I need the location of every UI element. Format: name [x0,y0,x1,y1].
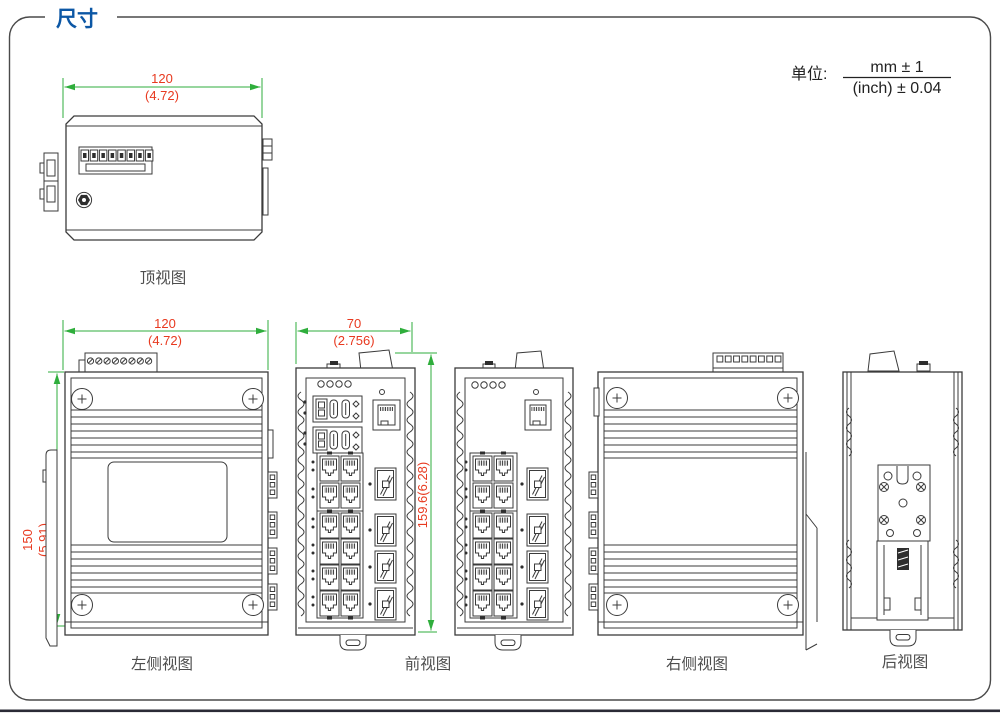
front-width-dimension: 70 (2.756) [296,316,412,364]
din-mount-plate [878,465,930,541]
rear-view: 后视图 [843,351,962,671]
left-side-view-label: 左侧视图 [131,655,193,673]
din-latch [877,541,928,620]
dimension-drawing: 尺寸 单位: mm ± 1 (inch) ± 0.04 120 (4.72) 顶… [0,0,1000,717]
front-height: 159.6(6.28) [415,462,430,529]
top-view-body [66,116,262,240]
ground-screw-icon [76,192,91,207]
top-width-mm: 120 [151,71,173,86]
right-side-view-label: 右侧视图 [666,655,728,673]
front-view-alt [455,351,573,650]
rear-view-label: 后视图 [882,653,929,671]
front-width-mm: 70 [347,316,361,331]
top-view: 120 (4.72) 顶视图 [40,71,272,287]
left-body [65,372,268,635]
top-width-inch: (4.72) [145,88,179,103]
left-width-mm: 120 [154,316,176,331]
console-port [373,400,400,430]
unit-denominator: (inch) ± 0.04 [853,80,942,97]
front-width-inch: (2.756) [333,333,374,348]
right-body [598,372,803,635]
front-view: 70 (2.756) 159.6(6.28) [296,316,451,673]
front-view-label: 前视图 [405,655,452,673]
left-side-view: 120 (4.72) 150 (5.91) 左侧视图 [20,316,277,673]
right-side-view: 右侧视图 [589,353,817,673]
console-port-alt [525,400,551,430]
top-view-din-clip [40,153,58,211]
right-din-rail [806,452,817,650]
top-view-label: 顶视图 [140,269,187,287]
left-din-clip [46,450,57,646]
page-title: 尺寸 [56,7,98,31]
top-view-width-dimension: 120 (4.72) [63,71,262,118]
unit-label: 单位: [791,65,827,83]
unit-note: 单位: mm ± 1 (inch) ± 0.04 [791,59,951,97]
left-height-mm: 150 [20,529,35,551]
unit-numerator: mm ± 1 [870,59,923,76]
footer-bar [0,710,1000,713]
left-width-inch: (4.72) [148,333,182,348]
